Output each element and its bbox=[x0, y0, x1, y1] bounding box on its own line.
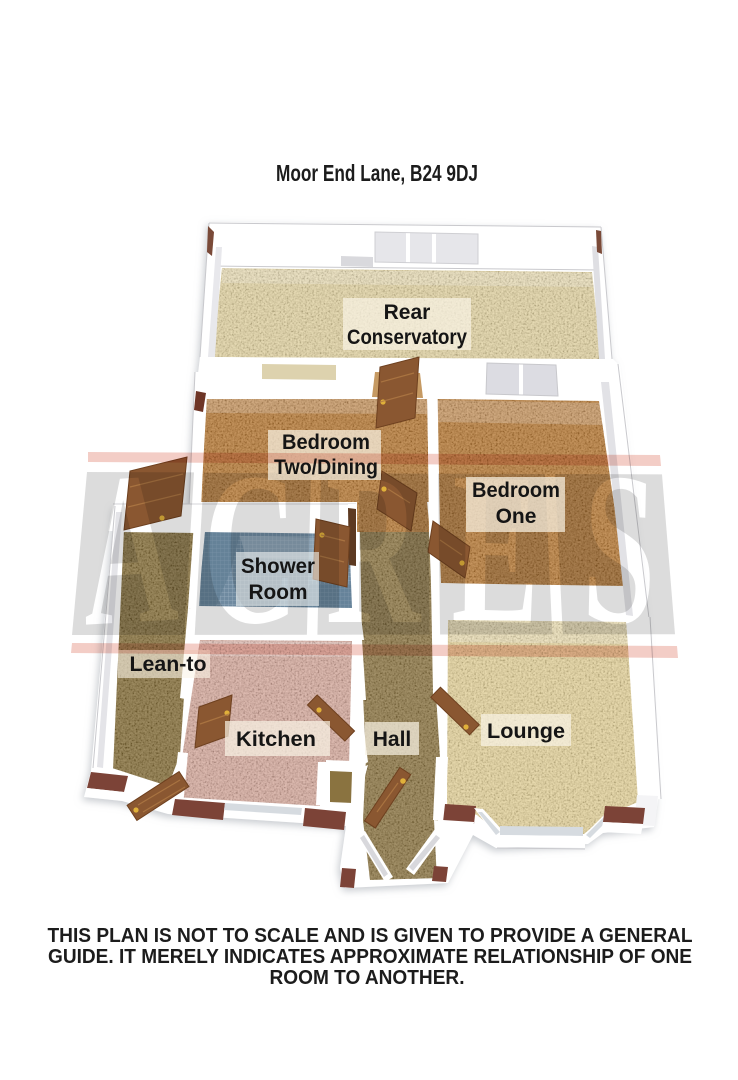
svg-text:Lounge: Lounge bbox=[487, 720, 565, 743]
svg-text:Room: Room bbox=[249, 581, 308, 604]
svg-text:Kitchen: Kitchen bbox=[236, 728, 316, 751]
svg-text:Conservatory: Conservatory bbox=[347, 326, 467, 349]
svg-text:Lean-to: Lean-to bbox=[130, 653, 207, 676]
svg-text:GUIDE. IT MERELY INDICATES APP: GUIDE. IT MERELY INDICATES APPROXIMATE R… bbox=[48, 946, 692, 968]
svg-text:Hall: Hall bbox=[373, 728, 412, 751]
svg-text:THIS PLAN IS NOT TO SCALE AND: THIS PLAN IS NOT TO SCALE AND IS GIVEN T… bbox=[48, 925, 693, 947]
svg-text:Bedroom: Bedroom bbox=[282, 431, 370, 454]
svg-text:ROOM TO ANOTHER.: ROOM TO ANOTHER. bbox=[270, 967, 465, 989]
svg-text:Rear: Rear bbox=[384, 301, 431, 324]
svg-text:One: One bbox=[496, 505, 537, 528]
svg-text:Moor End Lane, B24 9DJ: Moor End Lane, B24 9DJ bbox=[276, 160, 478, 186]
svg-text:Bedroom: Bedroom bbox=[472, 479, 560, 502]
svg-text:Shower: Shower bbox=[241, 555, 315, 578]
